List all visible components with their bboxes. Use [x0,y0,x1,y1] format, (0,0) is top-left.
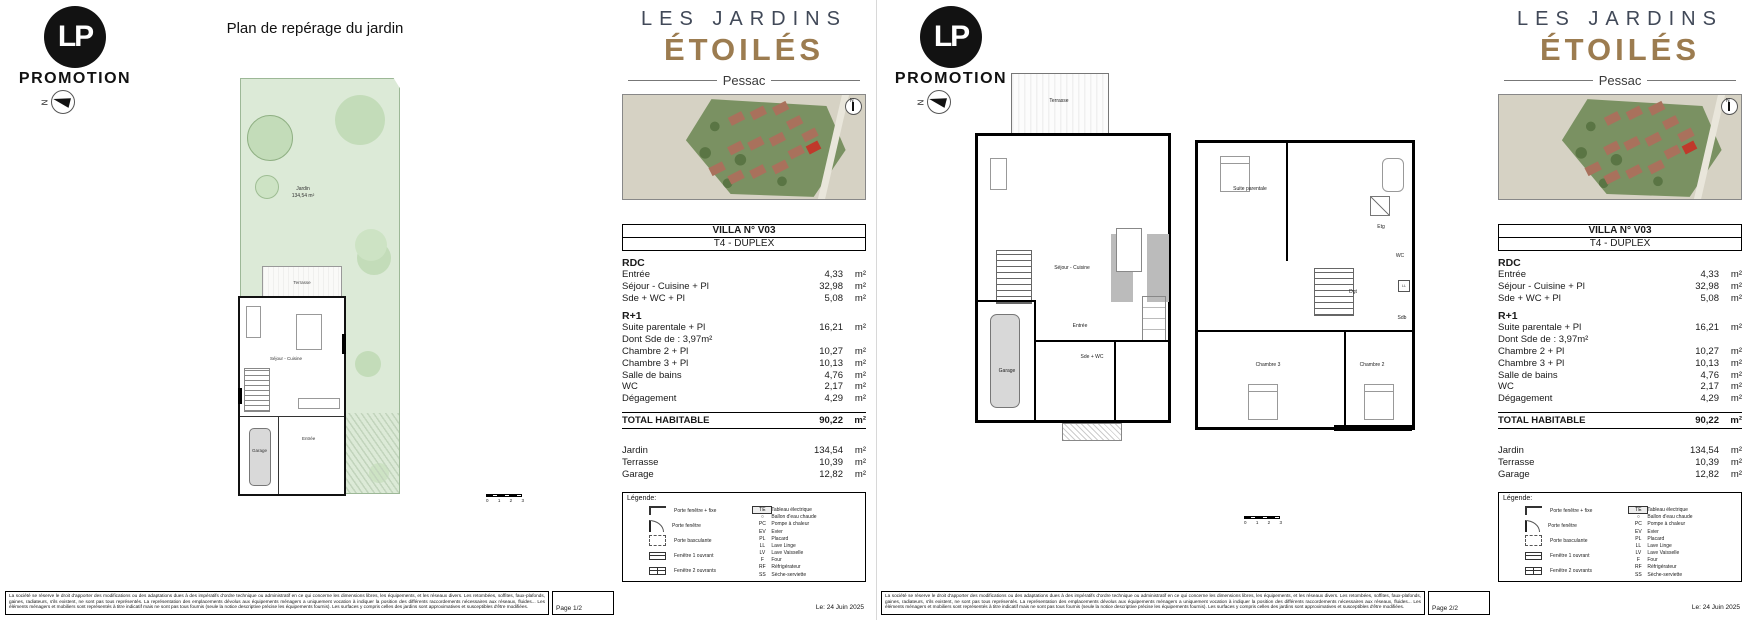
room-label-dgt: Dgt [1349,289,1357,295]
info-column: LES JARDINS ÉTOILÉS Pessac N VILLA N° V0… [1498,8,1742,582]
aerial-north-needle [852,102,854,111]
rdc-terrace [1011,73,1109,135]
row-label: Dont Sde de : 3,97m² [622,334,797,346]
row-unit: m² [1719,445,1742,457]
project-name-line2: ÉTOILÉS [1498,32,1742,68]
door-window-icon [649,520,664,532]
area-row: Entrée4,33m² [1498,269,1742,281]
table-icon [296,314,322,350]
project-city: Pessac [1599,73,1642,88]
row-label: Salle de bains [1498,370,1673,382]
lp-promotion-logo: LP PROMOTION [890,6,1012,88]
inner-wall [278,416,279,494]
legend-item: PCPompe à chaleur [1629,521,1737,528]
legend-item: PLPlacard [1629,535,1737,542]
page-1: LP PROMOTION Plan de repérage du jardin … [0,0,876,620]
scale-bar-segments [486,494,538,497]
room-label-sdb: Sdb [1398,315,1407,321]
total-unit: m² [843,415,866,426]
villa-number: VILLA N° V03 [622,224,866,238]
legend-code: TE [753,507,771,513]
legend-item: Porte fenêtre [649,520,753,531]
divider-line [771,80,860,81]
stairs-icon [1314,268,1354,316]
area-row: Séjour - Cuisine + Pl32,98m² [622,281,866,293]
row-value: 4,29 [797,393,843,405]
legend-label: Pompe à chaleur [1647,521,1685,527]
inner-wall [1286,143,1288,261]
villa-type: T4 - DUPLEX [622,238,866,251]
legend-item: Porte basculante [1525,535,1629,546]
row-unit: m² [843,457,866,469]
row-value: 4,33 [1673,269,1719,281]
row-value: 10,27 [797,346,843,358]
stairs-icon [996,250,1032,304]
area-row: Suite parentale + Pl16,21m² [622,322,866,334]
row-value: 4,33 [797,269,843,281]
aerial-site-photo: N [1498,94,1742,200]
legend-code: TE [1629,507,1647,513]
wall-segment [1334,425,1412,431]
row-label: Sde + WC + Pl [1498,293,1673,305]
lp-logo-icon: LP [920,6,982,68]
north-label: N [916,99,925,105]
scale-bar-segments [1244,516,1296,519]
legend-equipment-column: TETableau électrique ○Ballon d'eau chaud… [1629,505,1737,580]
inner-wall [1036,340,1168,342]
lp-logo-name: PROMOTION [890,70,1012,88]
scale-tick: 3 [1279,520,1282,525]
lp-logo-name: PROMOTION [14,70,136,88]
car-icon [249,428,271,486]
area-row: Suite parentale + Pl16,21m² [1498,322,1742,334]
legend-label: Lave Vaisselle [771,550,803,556]
legend-label: Porte fenêtre + fixe [674,508,716,514]
row-label: Entrée [1498,269,1673,281]
total-unit: m² [1719,415,1742,426]
row-unit: m² [843,281,866,293]
area-row: WC2,17m² [622,381,866,393]
door-window-fixed-icon [1525,506,1542,515]
row-value: 32,98 [1673,281,1719,293]
info-column: LES JARDINS ÉTOILÉS Pessac N VILLA N° V0… [622,8,866,582]
area-row: Chambre 3 + Pl10,13m² [1498,358,1742,370]
row-label: Suite parentale + Pl [1498,322,1673,334]
legend-item: SSSèche-serviette [1629,571,1737,578]
legend-label: Lave Linge [771,543,795,549]
legend-item: EVEvier [753,528,861,535]
aerial-north-needle [1728,102,1730,111]
room-label-terrasse: Terrasse [1049,98,1068,104]
row-label: Suite parentale + Pl [622,322,797,334]
scale-tick: 0 [486,498,489,503]
row-value: 134,54 [797,445,843,457]
row-label: Dont Sde de : 3,97m² [1498,334,1673,346]
area-row: Sde + WC + Pl5,08m² [622,293,866,305]
window-1-leaf-icon [1525,552,1542,560]
scale-ticks: 0123 [486,498,538,503]
area-row: Séjour - Cuisine + Pl32,98m² [1498,281,1742,293]
row-unit [843,334,866,346]
row-value: 4,29 [1673,393,1719,405]
garden-area-label: Jardin 134,54 m² [278,186,328,199]
legend-item: RFRéfrigérateur [753,564,861,571]
legend-label: Evier [1647,529,1658,535]
legend-item: LVLave Vaisselle [1629,549,1737,556]
project-city-row: Pessac [628,73,860,88]
row-value: 2,17 [797,381,843,393]
legend-item: LLLave Linge [1629,542,1737,549]
row-value: 32,98 [797,281,843,293]
area-row: Jardin134,54m² [1498,445,1742,457]
area-row: Garage12,82m² [1498,469,1742,481]
scale-segment [516,494,522,497]
row-label: WC [622,381,797,393]
legend-label: Lave Vaisselle [1647,550,1679,556]
scale-ticks: 0123 [1244,520,1296,525]
row-label: Salle de bains [622,370,797,382]
legend-title: Légende: [627,495,861,502]
kitchen-counter-icon [298,398,340,409]
scale-tick: 3 [521,498,524,503]
row-value: 10,13 [797,358,843,370]
room-label-wc: WC [1396,253,1404,259]
sofa-icon [246,306,261,338]
legend-label: Tableau électrique [1647,507,1688,513]
terrace-label: Terrasse [262,266,342,298]
row-value: 12,82 [1673,469,1719,481]
legend-code: LL [1629,543,1647,549]
legend-item: Porte fenêtre + fixe [649,505,753,516]
row-label: Garage [622,469,797,481]
legend-box: Légende: Porte fenêtre + fixe Porte fenê… [1498,492,1742,582]
row-unit [1719,334,1742,346]
area-row: Salle de bains4,76m² [622,370,866,382]
legend-code: RF [753,564,771,570]
legend-item: ○Ballon d'eau chaude [753,514,861,521]
area-row: Terrasse10,39m² [622,457,866,469]
row-unit: m² [843,269,866,281]
room-label-entree: Entrée [302,436,315,441]
legend-item: Fenêtre 2 ouvrants [649,565,753,576]
legend-box: Légende: Porte fenêtre + fixe Porte fenê… [622,492,866,582]
row-label: Chambre 2 + Pl [622,346,797,358]
row-label: Chambre 3 + Pl [622,358,797,370]
row-unit: m² [1719,346,1742,358]
aerial-north-icon: N [1721,98,1738,115]
door-window-icon [1525,520,1540,532]
legend-item: FFour [753,557,861,564]
tree-icon [255,175,279,199]
legend-label: Placard [1647,536,1664,542]
legend-code: LV [1629,550,1647,556]
house-footprint: Séjour - Cuisine Garage Entrée [238,296,346,496]
legend-item: PLPlacard [753,535,861,542]
legend-code: LL [753,543,771,549]
shower-icon [1370,196,1390,216]
lp-logo-icon: LP [44,6,106,68]
row-value: 10,27 [1673,346,1719,358]
row-label: Jardin [622,445,797,457]
tilting-door-icon [649,535,666,546]
legend-code: EV [1629,529,1647,535]
wall-segment [342,334,346,354]
legend-label: Fenêtre 2 ouvrants [1550,568,1592,574]
legend-label: Porte fenêtre + fixe [1550,508,1592,514]
exterior-areas: Jardin134,54m² Terrasse10,39m² Garage12,… [622,445,866,480]
area-row: Dont Sde de : 3,97m² [1498,334,1742,346]
row-label: Dégagement [622,393,797,405]
legend-item: LLLave Linge [753,542,861,549]
divider-line [1504,80,1593,81]
legend-code: ○ [1629,514,1647,520]
project-name-line1: LES JARDINS [622,8,866,31]
legend-code: RF [1629,564,1647,570]
room-label-sejour: Séjour - Cuisine [1054,265,1090,271]
legend-item: Porte fenêtre + fixe [1525,505,1629,516]
area-row: Dont Sde de : 3,97m² [622,334,866,346]
stairs-icon [244,368,270,412]
row-unit: m² [843,370,866,382]
wall-segment [238,388,242,404]
divider-line [628,80,717,81]
row-unit: m² [843,358,866,370]
aerial-north-icon: N [845,98,862,115]
page-title: Plan de repérage du jardin [190,20,440,37]
page-divider [876,0,877,620]
compass-icon [927,90,951,114]
legend-code: PL [753,536,771,542]
scale-tick: 1 [498,498,501,503]
tree-icon [247,115,293,161]
row-unit: m² [1719,370,1742,382]
area-row: Chambre 3 + Pl10,13m² [622,358,866,370]
legend-code: EV [753,529,771,535]
row-unit: m² [1719,469,1742,481]
room-label-garage: Garage [252,448,267,453]
row-label: Sde + WC + Pl [622,293,797,305]
aerial-site-photo: N [622,94,866,200]
bathtub-icon [1382,158,1404,192]
dining-table-icon [1116,228,1142,272]
legend-code: PL [1629,536,1647,542]
row-label: WC [1498,381,1673,393]
legend-label: Sèche-serviette [1647,572,1682,578]
total-row: TOTAL HABITABLE90,22m² [1498,412,1742,429]
inner-wall [240,416,344,417]
row-label: Chambre 2 + Pl [1498,346,1673,358]
row-unit: m² [1719,457,1742,469]
room-label-entree: Entrée [1073,323,1088,329]
row-value: 5,08 [1673,293,1719,305]
row-unit: m² [843,381,866,393]
exterior-areas: Jardin134,54m² Terrasse10,39m² Garage12,… [1498,445,1742,480]
row-value: 5,08 [797,293,843,305]
row-unit: m² [843,469,866,481]
area-row: WC2,17m² [1498,381,1742,393]
page-number: Page 2/2 [1428,591,1490,615]
north-compass: N [42,90,75,114]
area-row: Sde + WC + Pl5,08m² [1498,293,1742,305]
area-row: Salle de bains4,76m² [1498,370,1742,382]
legend-title: Légende: [1503,495,1737,502]
scale-tick: 0 [1244,520,1247,525]
section-r1: R+1 [1498,310,1742,322]
project-city-row: Pessac [1504,73,1736,88]
legend-label: Placard [771,536,788,542]
sofa-icon [990,158,1007,190]
legend-item: Fenêtre 1 ouvrant [649,550,753,561]
legend-label: Pompe à chaleur [771,521,809,527]
scale-tick: 2 [510,498,513,503]
row-unit: m² [843,346,866,358]
row-label: Terrasse [1498,457,1673,469]
legend-item: ○Ballon d'eau chaude [1629,514,1737,521]
inner-wall [1344,332,1346,427]
row-unit: m² [843,445,866,457]
section-r1: R+1 [622,310,866,322]
kitchen-counter-icon [1142,296,1166,342]
row-unit: m² [843,393,866,405]
room-label-chambre3: Chambre 3 [1256,362,1281,368]
legend-label: Porte fenêtre [1548,523,1577,529]
legend-label: Porte basculante [674,538,712,544]
hatched-area [343,413,399,493]
scale-bar: 0123 [1244,516,1296,525]
row-unit: m² [843,293,866,305]
legend-code: F [753,557,771,563]
garden-label-area: 134,54 m² [278,193,328,200]
window-2-leaf-icon [1525,567,1542,575]
legend-label: Réfrigérateur [771,564,800,570]
inner-wall [1198,330,1412,332]
row-unit: m² [1719,393,1742,405]
disclaimer-text: La société se réserve le droit d'apporte… [881,591,1425,615]
page-2: LP PROMOTION N Terrasse Séjour - Cuisine… [876,0,1752,620]
villa-number: VILLA N° V03 [1498,224,1742,238]
scale-tick: 1 [1256,520,1259,525]
legend-item: Fenêtre 1 ouvrant [1525,550,1629,561]
row-value [797,334,843,346]
legend-doors-column: Porte fenêtre + fixe Porte fenêtre Porte… [627,505,753,580]
total-row: TOTAL HABITABLE90,22m² [622,412,866,429]
row-value: 16,21 [797,322,843,334]
bed-icon [1364,384,1394,420]
legend-item: RFRéfrigérateur [1629,564,1737,571]
project-name-line2: ÉTOILÉS [622,32,866,68]
legend-label: Fenêtre 1 ouvrant [674,553,713,559]
legend-label: Ballon d'eau chaude [1647,514,1692,520]
legend-label: Evier [771,529,782,535]
row-unit: m² [1719,358,1742,370]
scale-tick: 2 [1268,520,1271,525]
row-label: Entrée [622,269,797,281]
car-icon [990,314,1020,408]
room-label-suite: Suite parentale [1233,186,1267,192]
row-unit: m² [1719,293,1742,305]
legend-item: LVLave Vaisselle [753,549,861,556]
row-value: 134,54 [1673,445,1719,457]
row-unit: m² [843,322,866,334]
legend-item: Fenêtre 2 ouvrants [1525,565,1629,576]
row-label: Garage [1498,469,1673,481]
legend-equipment-column: TETableau électrique ○Ballon d'eau chaud… [753,505,861,580]
legend-label: Porte fenêtre [672,523,701,529]
legend-code: SS [753,572,771,578]
legend-columns: Porte fenêtre + fixe Porte fenêtre Porte… [1503,505,1737,580]
row-label: Séjour - Cuisine + Pl [622,281,797,293]
lp-promotion-logo: LP PROMOTION [14,6,136,88]
bed-icon [1248,384,1278,420]
north-label: N [40,99,49,105]
divider-line [1647,80,1736,81]
row-unit: m² [1719,381,1742,393]
legend-label: Four [1647,557,1657,563]
section-rdc: RDC [622,257,866,269]
row-unit: m² [1719,322,1742,334]
area-row: Entrée4,33m² [622,269,866,281]
door-window-fixed-icon [649,506,666,515]
entry-walkway [1062,423,1122,441]
row-value: 10,13 [1673,358,1719,370]
row-value: 10,39 [797,457,843,469]
area-row: Jardin134,54m² [622,445,866,457]
row-value: 16,21 [1673,322,1719,334]
legend-item: TETableau électrique [753,506,861,513]
legend-label: Porte basculante [1550,538,1588,544]
legend-code: LV [753,550,771,556]
row-label: Jardin [1498,445,1673,457]
room-label-chambre2: Chambre 2 [1360,362,1385,368]
legend-label: Fenêtre 2 ouvrants [674,568,716,574]
plan-document: LP PROMOTION Plan de repérage du jardin … [0,0,1752,620]
date-label: Le: 24 Juin 2025 [1692,604,1740,611]
legend-item: FFour [1629,557,1737,564]
legend-label: Four [771,557,781,563]
total-label: TOTAL HABITABLE [1498,415,1673,426]
row-label: Dégagement [1498,393,1673,405]
legend-item: EVEvier [1629,528,1737,535]
scale-bar: 0123 [486,494,538,503]
legend-label: Ballon d'eau chaude [771,514,816,520]
area-row: Terrasse10,39m² [1498,457,1742,469]
north-compass: N [918,90,951,114]
row-value: 12,82 [797,469,843,481]
area-row: Chambre 2 + Pl10,27m² [622,346,866,358]
villa-type: T4 - DUPLEX [1498,238,1742,251]
project-city: Pessac [723,73,766,88]
room-label-sde-wc: Sde + WC [1081,354,1104,360]
scale-segment [1274,516,1280,519]
total-value: 90,22 [797,415,843,426]
legend-label: Tableau électrique [771,507,812,513]
compass-needle-icon [928,94,947,108]
room-label-garage: Garage [999,368,1016,374]
row-unit: m² [1719,269,1742,281]
legend-code: PC [753,521,771,527]
room-label-sejour: Séjour - Cuisine [270,356,302,361]
page-number: Page 1/2 [552,591,614,615]
legend-columns: Porte fenêtre + fixe Porte fenêtre Porte… [627,505,861,580]
compass-icon [51,90,75,114]
legend-item: Porte fenêtre [1525,520,1629,531]
row-value: 4,76 [797,370,843,382]
legend-code: PC [1629,521,1647,527]
inner-wall [1114,340,1116,420]
legend-label: Fenêtre 1 ouvrant [1550,553,1589,559]
total-value: 90,22 [1673,415,1719,426]
window-1-leaf-icon [649,552,666,560]
